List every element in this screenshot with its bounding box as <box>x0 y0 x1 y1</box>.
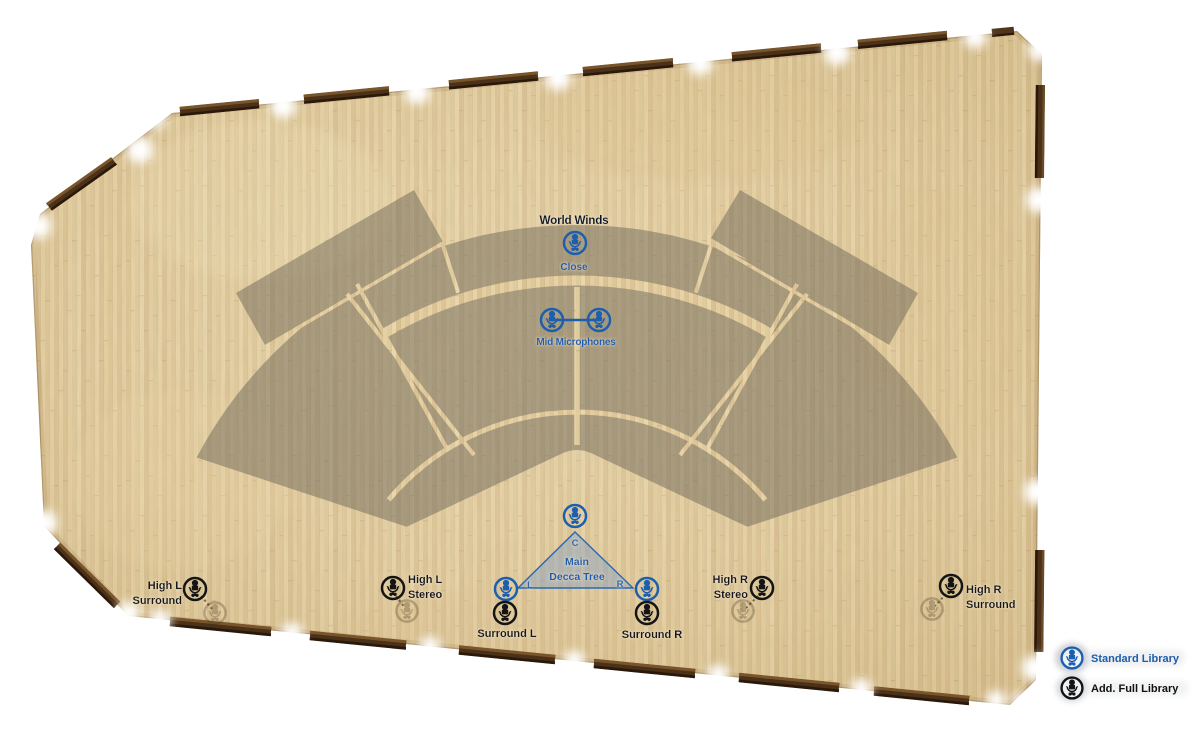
svg-text:Stereo: Stereo <box>714 589 749 601</box>
svg-text:L: L <box>527 580 533 591</box>
svg-text:R: R <box>617 579 624 590</box>
svg-text:Standard Library: Standard Library <box>1091 653 1180 665</box>
svg-text:High R: High R <box>966 584 1001 596</box>
svg-text:Close: Close <box>560 262 588 273</box>
svg-text:C: C <box>572 538 579 549</box>
svg-text:Decca Tree: Decca Tree <box>549 571 605 583</box>
svg-text:High L: High L <box>408 574 442 586</box>
svg-text:Surround: Surround <box>133 595 183 607</box>
svg-text:High R: High R <box>713 574 748 586</box>
svg-text:Add. Full Library: Add. Full Library <box>1091 683 1179 695</box>
svg-text:Main: Main <box>565 556 589 568</box>
svg-text:Stereo: Stereo <box>408 589 443 601</box>
svg-text:High L: High L <box>148 580 182 592</box>
svg-text:Surround: Surround <box>966 599 1016 611</box>
svg-text:World Winds: World Winds <box>540 214 610 227</box>
svg-text:Surround L: Surround L <box>477 628 537 640</box>
svg-text:Surround R: Surround R <box>622 629 683 641</box>
svg-text:Mid Microphones: Mid Microphones <box>536 337 616 348</box>
